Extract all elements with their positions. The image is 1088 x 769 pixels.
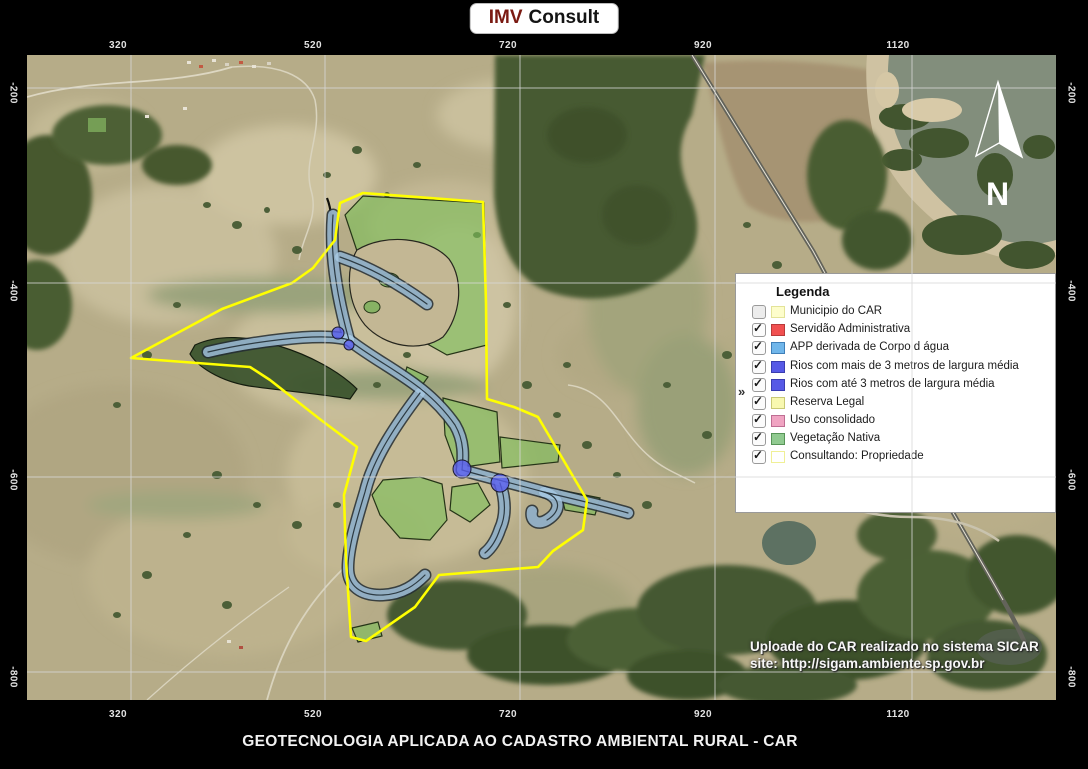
axis-tick-label: 1120 <box>886 709 909 720</box>
axis-tick-label: -800 <box>8 666 19 688</box>
axis-tick-label: 320 <box>109 709 127 720</box>
legend-item-label: Servidão Administrativa <box>790 322 918 337</box>
legend-item-label: Consultando: Propriedade <box>790 449 932 464</box>
check-icon: ✓ <box>753 394 763 408</box>
legend-item-label: Uso consolidado <box>790 413 883 428</box>
axis-tick-label: 920 <box>694 40 712 51</box>
legend-swatch <box>771 324 785 336</box>
legend-item: Municipio do CAR <box>752 304 1055 319</box>
axis-tick-label: -400 <box>8 280 19 302</box>
axis-tick-label: 1120 <box>886 40 909 51</box>
legend-item-label: APP derivada de Corpo d água <box>790 340 957 355</box>
legend-panel: » Legenda Municipio do CAR✓Servidão Admi… <box>735 273 1056 513</box>
axis-tick-label: -200 <box>8 82 19 104</box>
axis-tick-label: -600 <box>1066 469 1077 491</box>
check-icon: ✓ <box>753 412 763 426</box>
legend-item-label: Rios com mais de 3 metros de largura méd… <box>790 359 1027 374</box>
brand-secondary: Consult <box>529 7 600 28</box>
legend-checkbox-7[interactable]: ✓ <box>752 432 766 446</box>
legend-item-label: Vegetação Nativa <box>790 431 888 446</box>
legend-item: ✓Rios com até 3 metros de largura média <box>752 377 1055 392</box>
legend-checkbox-4[interactable]: ✓ <box>752 378 766 392</box>
brand-primary: IMV <box>489 7 523 28</box>
legend-item: ✓Vegetação Nativa <box>752 431 1055 446</box>
legend-item: ✓Servidão Administrativa <box>752 322 1055 337</box>
legend-swatch <box>771 361 785 373</box>
legend-collapse-icon[interactable]: » <box>738 384 745 399</box>
legend-swatch <box>771 397 785 409</box>
check-icon: ✓ <box>753 430 763 444</box>
check-icon: ✓ <box>753 321 763 335</box>
legend-swatch <box>771 433 785 445</box>
legend-checkbox-0[interactable] <box>752 305 766 319</box>
legend-item: ✓Consultando: Propriedade <box>752 449 1055 464</box>
axis-tick-label: -800 <box>1066 666 1077 688</box>
axis-tick-label: -600 <box>8 469 19 491</box>
legend-item-label: Municipio do CAR <box>790 304 890 319</box>
legend-swatch <box>771 415 785 427</box>
legend-checkbox-6[interactable]: ✓ <box>752 414 766 428</box>
map-viewport[interactable]: » Legenda Municipio do CAR✓Servidão Admi… <box>27 55 1056 700</box>
legend-title: Legenda <box>776 284 1055 299</box>
axis-tick-label: 720 <box>499 40 517 51</box>
check-icon: ✓ <box>753 339 763 353</box>
check-icon: ✓ <box>753 376 763 390</box>
axis-tick-label: 920 <box>694 709 712 720</box>
legend-checkbox-2[interactable]: ✓ <box>752 341 766 355</box>
axis-tick-label: 720 <box>499 709 517 720</box>
sicar-note: Uploade do CAR realizado no sistema SICA… <box>750 639 1039 673</box>
legend-swatch <box>771 379 785 391</box>
axis-tick-label: 520 <box>304 709 322 720</box>
check-icon: ✓ <box>753 358 763 372</box>
axis-tick-label: -400 <box>1066 280 1077 302</box>
legend-item: ✓APP derivada de Corpo d água <box>752 340 1055 355</box>
sicar-note-line1: Uploade do CAR realizado no sistema SICA… <box>750 639 1039 656</box>
legend-swatch <box>771 306 785 318</box>
axis-tick-label: 320 <box>109 40 127 51</box>
legend-checkbox-3[interactable]: ✓ <box>752 360 766 374</box>
axis-tick-label: 520 <box>304 40 322 51</box>
legend-item-label: Reserva Legal <box>790 395 872 410</box>
axis-tick-label: -200 <box>1066 82 1077 104</box>
legend-item: ✓Rios com mais de 3 metros de largura mé… <box>752 359 1055 374</box>
legend-item: ✓Reserva Legal <box>752 395 1055 410</box>
legend-swatch <box>771 342 785 354</box>
legend-checkbox-1[interactable]: ✓ <box>752 323 766 337</box>
legend-swatch <box>771 451 785 463</box>
legend-checkbox-8[interactable]: ✓ <box>752 450 766 464</box>
page: { "header": { "brand_primary": "IMV", "b… <box>0 0 1088 769</box>
sicar-note-line2: site: http://sigam.ambiente.sp.gov.br <box>750 656 1039 673</box>
brand-logo: IMVConsult <box>470 3 619 34</box>
map-title: GEOTECNOLOGIA APLICADA AO CADASTRO AMBIE… <box>242 733 798 751</box>
legend-checkbox-5[interactable]: ✓ <box>752 396 766 410</box>
legend-item-label: Rios com até 3 metros de largura média <box>790 377 1003 392</box>
check-icon: ✓ <box>753 448 763 462</box>
legend-items: Municipio do CAR✓Servidão Administrativa… <box>752 304 1055 465</box>
legend-item: ✓Uso consolidado <box>752 413 1055 428</box>
